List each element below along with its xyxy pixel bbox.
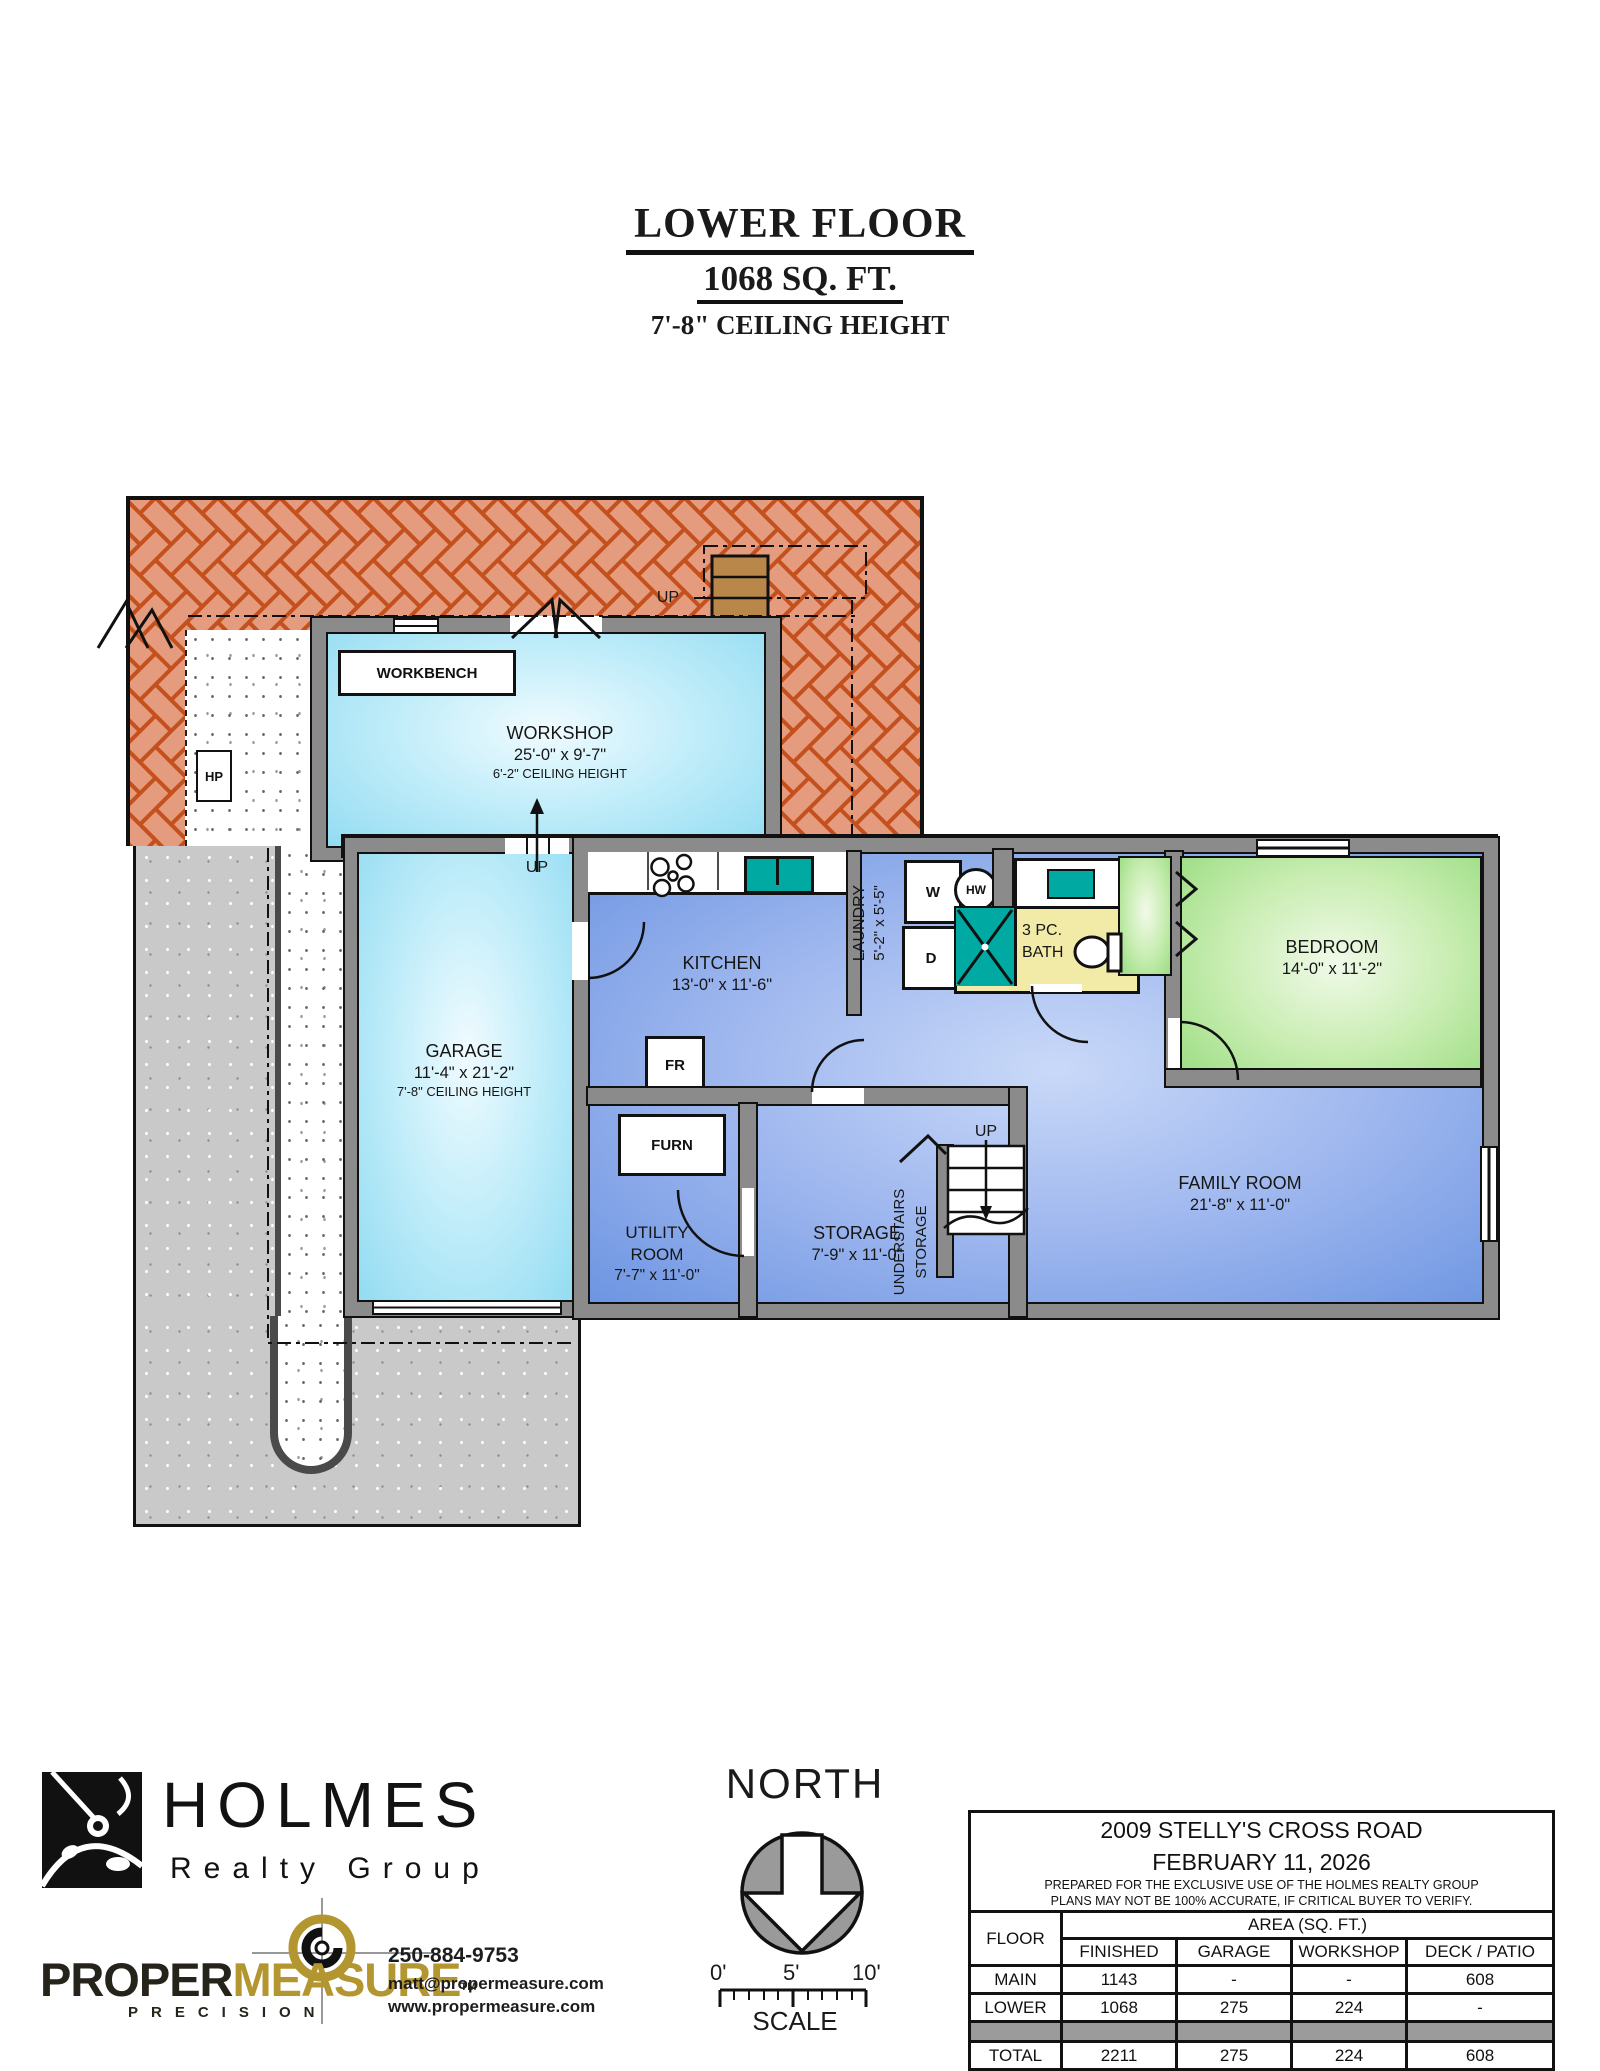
- french-door-opening: [510, 616, 602, 634]
- family-room-dims: 21'-8" x 11'-0": [1130, 1195, 1350, 1216]
- workshop-name: WORKSHOP: [440, 722, 680, 745]
- bath-name-2: BATH: [1022, 942, 1098, 964]
- holmes-tagline: Realty Group: [170, 1852, 690, 1886]
- table-row-lower: LOWER 1068 275 224 -: [970, 1994, 1554, 2022]
- bedroom-closet: [1118, 856, 1172, 976]
- col-header-garage: GARAGE: [1177, 1939, 1292, 1966]
- table-row-main: MAIN 1143 - - 608: [970, 1966, 1554, 1994]
- phone-number: 250-884-9753: [388, 1944, 519, 1968]
- fridge: FR: [645, 1036, 705, 1094]
- plan-date: FEBRUARY 11, 2026: [971, 1845, 1552, 1877]
- storage-door-opening: [812, 1088, 864, 1104]
- laundry-bath-stub-wall: [994, 850, 1012, 908]
- main-garage-cell: -: [1177, 1966, 1292, 1994]
- bedroom-name: BEDROOM: [1222, 936, 1442, 959]
- bath-name-1: 3 PC.: [1022, 920, 1098, 942]
- up-label-garage: UP: [505, 858, 569, 878]
- main-workshop-cell: -: [1292, 1966, 1407, 1994]
- bath-label: 3 PC. BATH: [1022, 920, 1098, 965]
- fridge-label: FR: [665, 1057, 685, 1074]
- laundry-name: LAUNDRY: [850, 848, 870, 998]
- workshop-dims: 25'-0" x 9'-7": [440, 745, 680, 766]
- scale-tick-5: 5': [783, 1960, 799, 1986]
- utility-dims: 7'-7" x 11'-0": [582, 1266, 732, 1286]
- bath-door-opening: [1030, 984, 1082, 992]
- total-workshop-cell: 224: [1292, 2042, 1407, 2070]
- col-header-finished: FINISHED: [1062, 1939, 1177, 1966]
- workbench-label: WORKBENCH: [377, 665, 478, 682]
- total-floor-cell: TOTAL: [970, 2042, 1062, 2070]
- kitchen-name: KITCHEN: [622, 952, 822, 975]
- furnace-label: FURN: [651, 1137, 693, 1154]
- floor-plan-page: { "title": { "line1": "LOWER FLOOR", "li…: [0, 0, 1600, 2071]
- garage-label: GARAGE 11'-4" x 21'-2" 7'-8" CEILING HEI…: [364, 1040, 564, 1101]
- dryer-label: D: [926, 950, 937, 967]
- scale-tick-10: 10': [852, 1960, 881, 1986]
- garage-name: GARAGE: [364, 1040, 564, 1063]
- understairs-name-1: UNDERSTAIRS: [889, 1167, 911, 1317]
- kitchen-dims: 13'-0" x 11'-6": [622, 975, 822, 996]
- laundry-dims: 5'-2" x 5'-5": [870, 848, 889, 998]
- pm-precision-tagline: PRECISION: [128, 2004, 328, 2021]
- scale-tick-0: 0': [710, 1960, 726, 1986]
- bedroom-bottom-wall: [1166, 1070, 1480, 1086]
- workshop-ceiling: 6'-2" CEILING HEIGHT: [440, 766, 680, 783]
- utility-name-2: ROOM: [582, 1244, 732, 1266]
- email-address[interactable]: matt@propermeasure.com: [388, 1974, 604, 1994]
- north-label: NORTH: [690, 1760, 920, 1808]
- main-deck-cell: 608: [1407, 1966, 1554, 1994]
- total-garage-cell: 275: [1177, 2042, 1292, 2070]
- sink-divider: [776, 859, 779, 885]
- up-label-stairs: UP: [960, 1122, 1012, 1142]
- total-deck-cell: 608: [1407, 2042, 1554, 2070]
- understairs-label: UNDERSTAIRS STORAGE: [889, 1167, 937, 1317]
- col-header-deck: DECK / PATIO: [1407, 1939, 1554, 1966]
- family-room-window: [1480, 1146, 1498, 1242]
- family-room-name: FAMILY ROOM: [1130, 1172, 1350, 1195]
- hw-label: HW: [966, 883, 986, 897]
- kitchen-door-opening: [572, 922, 588, 980]
- utility-door-opening: [742, 1188, 754, 1256]
- area-info-table: 2009 STELLY'S CROSS ROAD FEBRUARY 11, 20…: [968, 1810, 1555, 2071]
- workbench: WORKBENCH: [338, 650, 516, 696]
- utility-name-1: UTILITY: [582, 1222, 732, 1244]
- furnace: FURN: [618, 1114, 726, 1176]
- bedroom-dims: 14'-0" x 11'-2": [1222, 959, 1442, 980]
- hp-label: HP: [205, 769, 223, 784]
- workshop-label: WORKSHOP 25'-0" x 9'-7" 6'-2" CEILING HE…: [440, 722, 680, 783]
- utility-label: UTILITY ROOM 7'-7" x 11'-0": [582, 1222, 732, 1285]
- up-label-exterior: UP: [640, 588, 696, 608]
- garage-dims: 11'-4" x 21'-2": [364, 1063, 564, 1084]
- lower-deck-cell: -: [1407, 1994, 1554, 2022]
- lower-workshop-cell: 224: [1292, 1994, 1407, 2022]
- bedroom-window: [1256, 839, 1350, 857]
- holmes-wordmark: HOLMES: [162, 1768, 682, 1842]
- laundry-label: LAUNDRY 5'-2" x 5'-5": [850, 848, 896, 998]
- scale-label: SCALE: [710, 2006, 880, 2037]
- understairs-name-2: STORAGE: [911, 1167, 933, 1317]
- total-finished-cell: 2211: [1062, 2042, 1177, 2070]
- garage-steps-opening: [505, 838, 569, 854]
- workshop-window: [393, 618, 439, 634]
- lower-floor-cell: LOWER: [970, 1994, 1062, 2022]
- table-row-total: TOTAL 2211 275 224 608: [970, 2042, 1554, 2070]
- bath-vanity: [1014, 858, 1128, 910]
- bedroom-label: BEDROOM 14'-0" x 11'-2": [1222, 936, 1442, 980]
- kitchen-sink: [744, 856, 814, 894]
- lower-finished-cell: 1068: [1062, 1994, 1177, 2022]
- walkway-upper: [185, 630, 313, 846]
- walkway-side: [275, 846, 349, 1316]
- kitchen-label: KITCHEN 13'-0" x 11'-6": [622, 952, 822, 996]
- disclaimer-line2: PLANS MAY NOT BE 100% ACCURATE, IF CRITI…: [971, 1893, 1552, 1910]
- col-header-workshop: WORKSHOP: [1292, 1939, 1407, 1966]
- exterior-stairwell: [270, 1316, 352, 1474]
- table-row-spacer: [970, 2022, 1554, 2042]
- stairs-right-wall: [1010, 1088, 1026, 1316]
- bedroom-door-opening: [1168, 1018, 1180, 1074]
- col-header-area: AREA (SQ. FT.): [1062, 1912, 1554, 1939]
- hall-south-wall: [588, 1088, 1024, 1104]
- shower: [956, 908, 1017, 986]
- property-address: 2009 STELLY'S CROSS ROAD: [971, 1813, 1552, 1845]
- col-header-floor: FLOOR: [970, 1912, 1062, 1966]
- garage-door: [372, 1300, 562, 1315]
- main-finished-cell: 1143: [1062, 1966, 1177, 1994]
- family-room-label: FAMILY ROOM 21'-8" x 11'-0": [1130, 1172, 1350, 1216]
- table-header-block: 2009 STELLY'S CROSS ROAD FEBRUARY 11, 20…: [970, 1812, 1554, 1912]
- disclaimer-line1: PREPARED FOR THE EXCLUSIVE USE OF THE HO…: [971, 1877, 1552, 1894]
- washer-label: W: [926, 884, 940, 901]
- garage-ceiling: 7'-8" CEILING HEIGHT: [364, 1084, 564, 1101]
- heat-pump-pad: HP: [196, 750, 232, 802]
- main-floor-cell: MAIN: [970, 1966, 1062, 1994]
- dryer: D: [902, 926, 960, 990]
- lower-garage-cell: 275: [1177, 1994, 1292, 2022]
- vanity-sink: [1047, 869, 1095, 899]
- pm-part1: PROPER: [40, 1953, 233, 2006]
- driveway-upper: [133, 846, 278, 1316]
- driveway-lower: [133, 1316, 581, 1527]
- website-url[interactable]: www.propermeasure.com: [388, 1997, 595, 2017]
